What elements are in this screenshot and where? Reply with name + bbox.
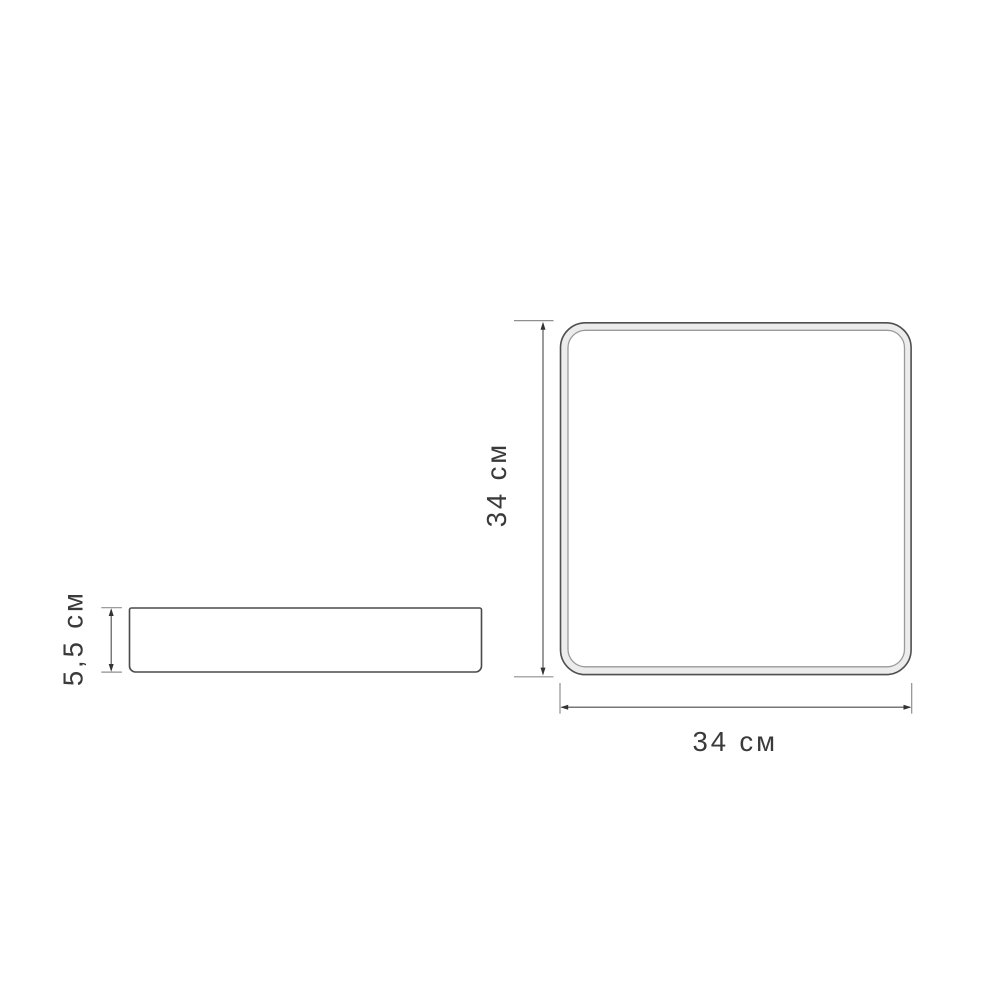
svg-text:34 см: 34 см xyxy=(481,442,512,527)
svg-text:34 см: 34 см xyxy=(693,726,778,757)
svg-text:5,5 см: 5,5 см xyxy=(58,590,89,686)
